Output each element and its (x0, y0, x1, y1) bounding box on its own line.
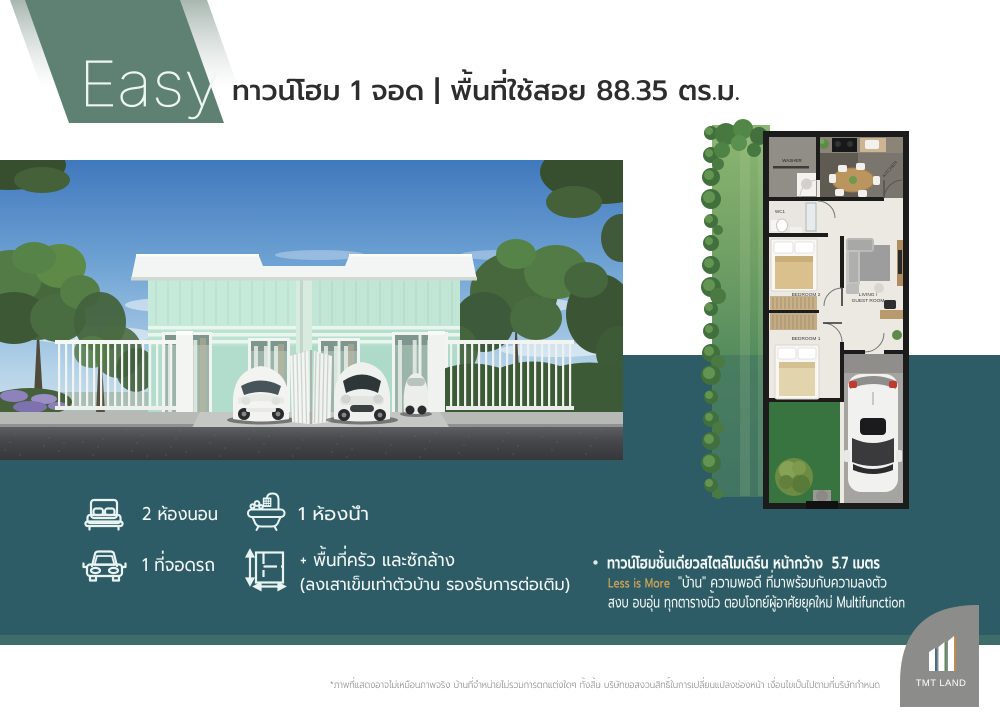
svg-text:LIVING /: LIVING / (859, 292, 878, 298)
svg-text:TMT LAND: TMT LAND (916, 678, 967, 689)
svg-text:BEDROOM 1: BEDROOM 1 (792, 336, 821, 342)
svg-text:WASHER: WASHER (782, 158, 802, 163)
svg-text:WC1: WC1 (775, 209, 785, 214)
svg-text:BEDROOM 2: BEDROOM 2 (792, 292, 821, 298)
svg-text:GUEST ROOM: GUEST ROOM (852, 298, 885, 304)
